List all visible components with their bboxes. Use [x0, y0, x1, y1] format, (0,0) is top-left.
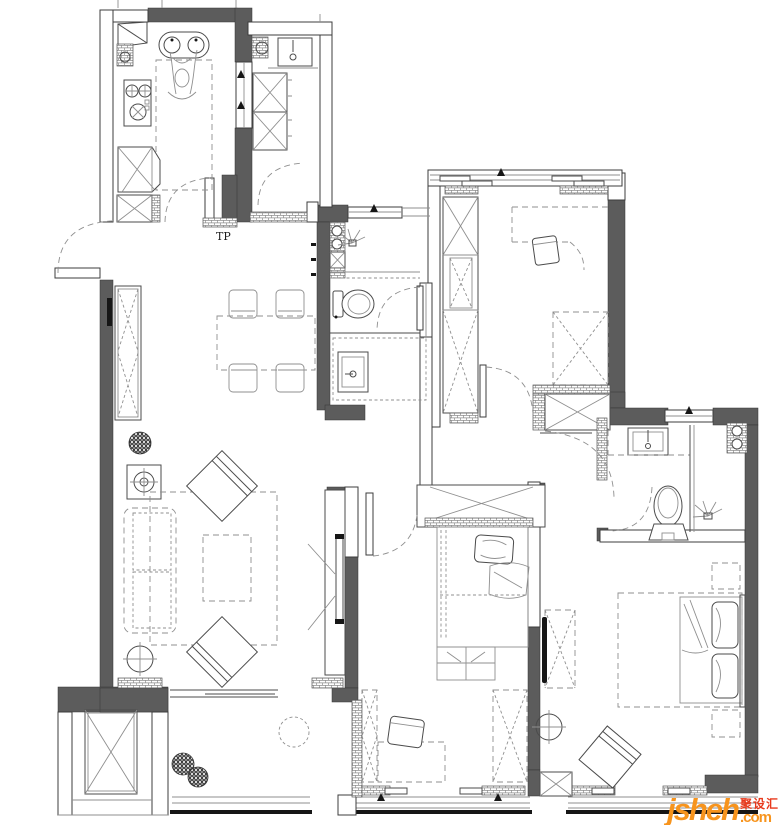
- wardrobe: [417, 485, 545, 527]
- armchair: [187, 617, 258, 688]
- window: [428, 168, 622, 194]
- balcony-sliding-door: [170, 690, 278, 697]
- bedside-table: [437, 647, 495, 680]
- utility-door-arc: [258, 163, 303, 205]
- plant: [188, 767, 208, 787]
- counter-outline: [156, 60, 212, 190]
- bedroom-master: [532, 563, 745, 796]
- watermark-brand: jsheh: [667, 794, 738, 825]
- toilet: [649, 486, 688, 540]
- dining-chair: [229, 364, 257, 392]
- armchair: [579, 726, 641, 788]
- entry-door-arc: [58, 221, 112, 273]
- desk-chair: [532, 235, 560, 265]
- dining-chair: [276, 290, 304, 318]
- bed: [680, 595, 745, 707]
- bathroom-door-arc: [377, 287, 420, 330]
- wardrobe: [443, 197, 478, 423]
- kitchen-door-arc: [165, 178, 210, 222]
- pipe-pier: [252, 37, 268, 58]
- side-table-lamp: [127, 465, 161, 499]
- tatami-bed: [553, 312, 608, 385]
- washing-machine: [117, 195, 160, 222]
- nightstand: [712, 710, 740, 737]
- tv-console: [542, 610, 575, 688]
- partition-wall: [352, 700, 362, 797]
- kitchen-cart: [118, 147, 160, 192]
- elevator: [85, 710, 137, 794]
- balcony-left: [172, 717, 309, 787]
- cabinet: [253, 73, 292, 150]
- coffee-table: [203, 535, 251, 601]
- plant: [129, 432, 151, 454]
- pipe-shaft-label: TP: [216, 230, 231, 243]
- floor-plan-page: TP: [0, 0, 780, 825]
- pier: [540, 772, 572, 796]
- bed: [437, 527, 529, 647]
- utility-room: [250, 37, 318, 222]
- pipe-pier: [117, 44, 133, 66]
- toilet: [333, 290, 374, 319]
- kitchen-sink: [159, 32, 209, 58]
- living-room: [123, 432, 345, 697]
- range-hood: [118, 22, 147, 47]
- door-leaf: [366, 493, 373, 555]
- rug: [150, 492, 277, 645]
- tv-wall: [308, 490, 345, 675]
- cabinet: [330, 252, 345, 268]
- window: [236, 62, 252, 128]
- dining-table: [217, 316, 315, 370]
- kitchen: [117, 22, 237, 227]
- bedroom-middle: [352, 485, 545, 797]
- vanity-sink: [333, 338, 426, 400]
- door-leaf: [417, 286, 423, 330]
- walls-dark: [58, 8, 758, 796]
- watermark-logo: jsheh 聚设汇 .com: [667, 794, 779, 825]
- bathroom-master: [597, 418, 747, 540]
- floor-lamp: [123, 642, 157, 676]
- wardrobe-dashed: [362, 690, 377, 782]
- threshold: [203, 218, 237, 227]
- window: [348, 204, 430, 218]
- glass-partition: [690, 425, 694, 532]
- dining-chair: [229, 290, 257, 318]
- desk: [512, 207, 608, 270]
- laundry-sink: [268, 38, 318, 68]
- master-bath-door-arc: [610, 487, 652, 531]
- pipe-pier: [330, 222, 345, 252]
- shower-head: [693, 501, 722, 519]
- desk: [378, 742, 445, 782]
- desk-chair: [387, 716, 425, 748]
- vanity-sink: [608, 428, 690, 455]
- window: [170, 797, 312, 814]
- bedroom-top-door-arc: [486, 367, 533, 414]
- floor-plan-drawing: TP: [0, 0, 780, 825]
- armchair: [187, 451, 258, 522]
- bedroom-middle-door-arc: [373, 515, 417, 556]
- dining-chair: [276, 364, 304, 392]
- partition-wall: [597, 418, 607, 480]
- watermark-tld: .com: [740, 810, 771, 825]
- dining-area: [217, 290, 315, 392]
- nightstand: [712, 563, 740, 589]
- door-leaf: [480, 365, 486, 417]
- pipe-pier: [727, 423, 747, 453]
- hanging-chair: [279, 717, 309, 747]
- window: [665, 406, 713, 422]
- wardrobe-dashed: [493, 690, 527, 782]
- gas-stove: [124, 80, 151, 126]
- window: [338, 786, 532, 815]
- threshold: [250, 212, 307, 222]
